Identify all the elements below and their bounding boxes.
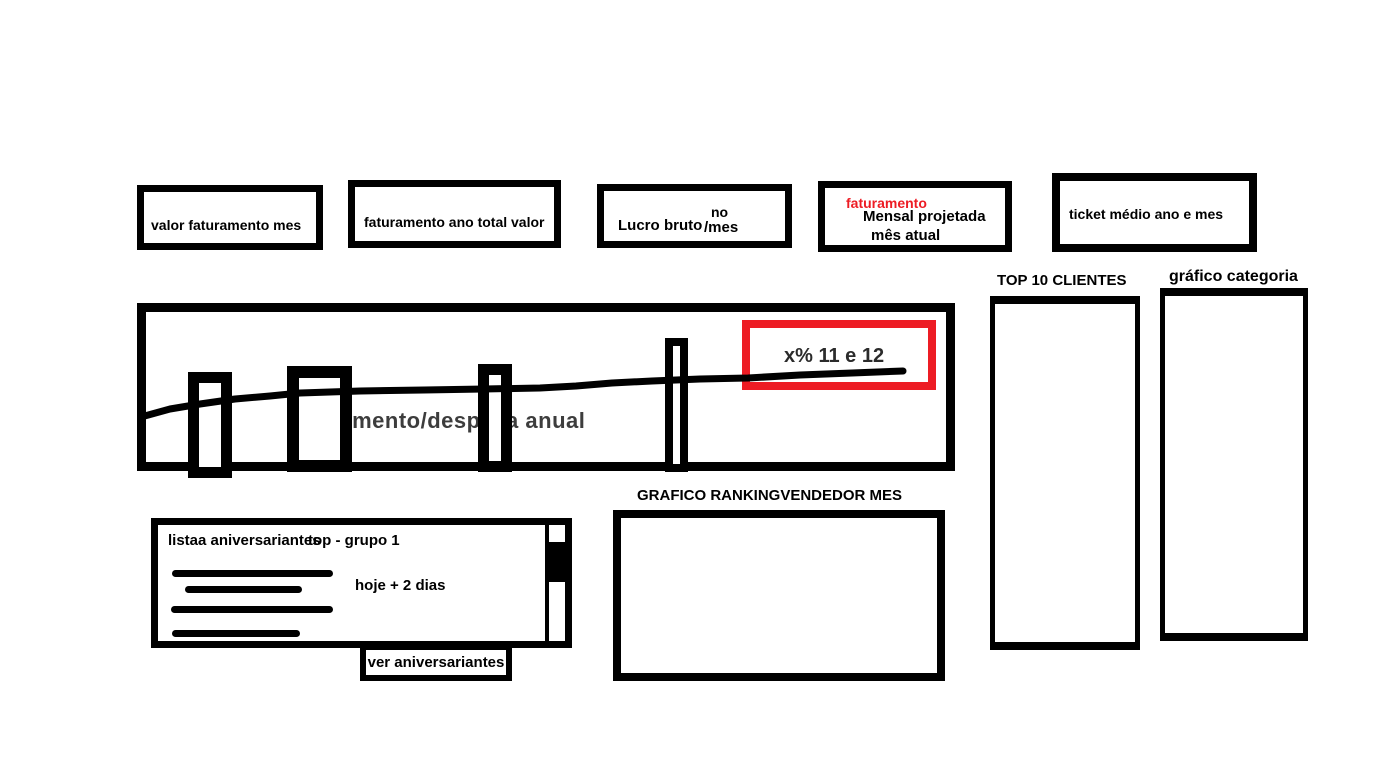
list-item [172,630,300,637]
kpi-label-mensal-projetada: Mensal projetada [863,208,986,225]
list-item [171,606,333,613]
kpi-card-faturamento-ano-total: faturamento ano total valor [348,180,561,248]
ver-aniversariantes-button[interactable]: ver aniversariantes [360,644,512,681]
category-chart-heading: gráfico categoria [1169,268,1298,286]
ver-aniversariantes-label: ver aniversariantes [368,654,505,671]
category-chart-panel [1160,288,1308,641]
kpi-card-faturamento-mensal-projetada: faturamento Mensal projetada mês atual [818,181,1012,252]
kpi-label-ano-total: faturamento ano total valor [364,214,544,230]
list-item [172,570,333,577]
scrollbar-track[interactable] [549,525,565,641]
birthday-group-label: top - grupo 1 [308,532,400,549]
top10-clients-panel [990,296,1140,650]
list-item [185,586,302,593]
kpi-label-bruto: bruto [664,217,702,234]
kpi-card-valor-faturamento-mes: valor faturamento mes [137,185,323,250]
chart-bar-4 [665,338,688,472]
birthday-range-note: hoje + 2 dias [355,577,445,594]
kpi-label-ticket-medio: ticket médio ano e mes [1069,206,1223,222]
kpi-card-lucro-bruto: Lucro bruto no /mes [597,184,792,248]
kpi-label-no-superscript: no [711,204,728,220]
chart-bar-3 [478,364,512,472]
kpi-label-mes-atual: mês atual [871,227,940,244]
vendor-ranking-panel [613,510,945,681]
top10-clients-heading: TOP 10 CLIENTES [997,272,1127,289]
scrollbar-thumb[interactable] [549,542,565,582]
kpi-label-valor-mes: valor faturamento mes [151,217,301,233]
percent-callout-box: x% 11 e 12 [742,320,936,390]
vendor-ranking-heading: GRAFICO RANKINGVENDEDOR MES [637,487,902,504]
kpi-label-per-month: /mes [704,219,738,236]
kpi-card-ticket-medio: ticket médio ano e mes [1052,173,1257,252]
chart-bar-2 [287,366,352,472]
birthday-list-panel: listaa aniversariantes top - grupo 1 hoj… [151,518,572,648]
kpi-label-lucro: Lucro [618,217,660,234]
chart-bar-1 [188,372,232,478]
percent-callout-label: x% 11 e 12 [784,345,884,368]
birthday-list-title: listaa aniversariantes [168,532,321,549]
